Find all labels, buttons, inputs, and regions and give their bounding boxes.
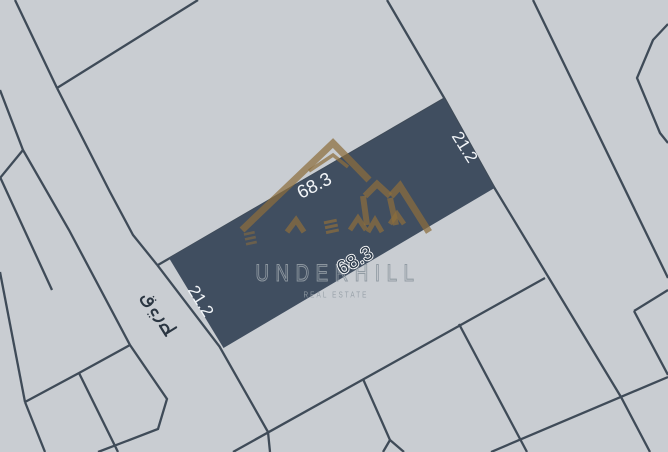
svg-text:REAL ESTATE: REAL ESTATE	[303, 290, 368, 300]
